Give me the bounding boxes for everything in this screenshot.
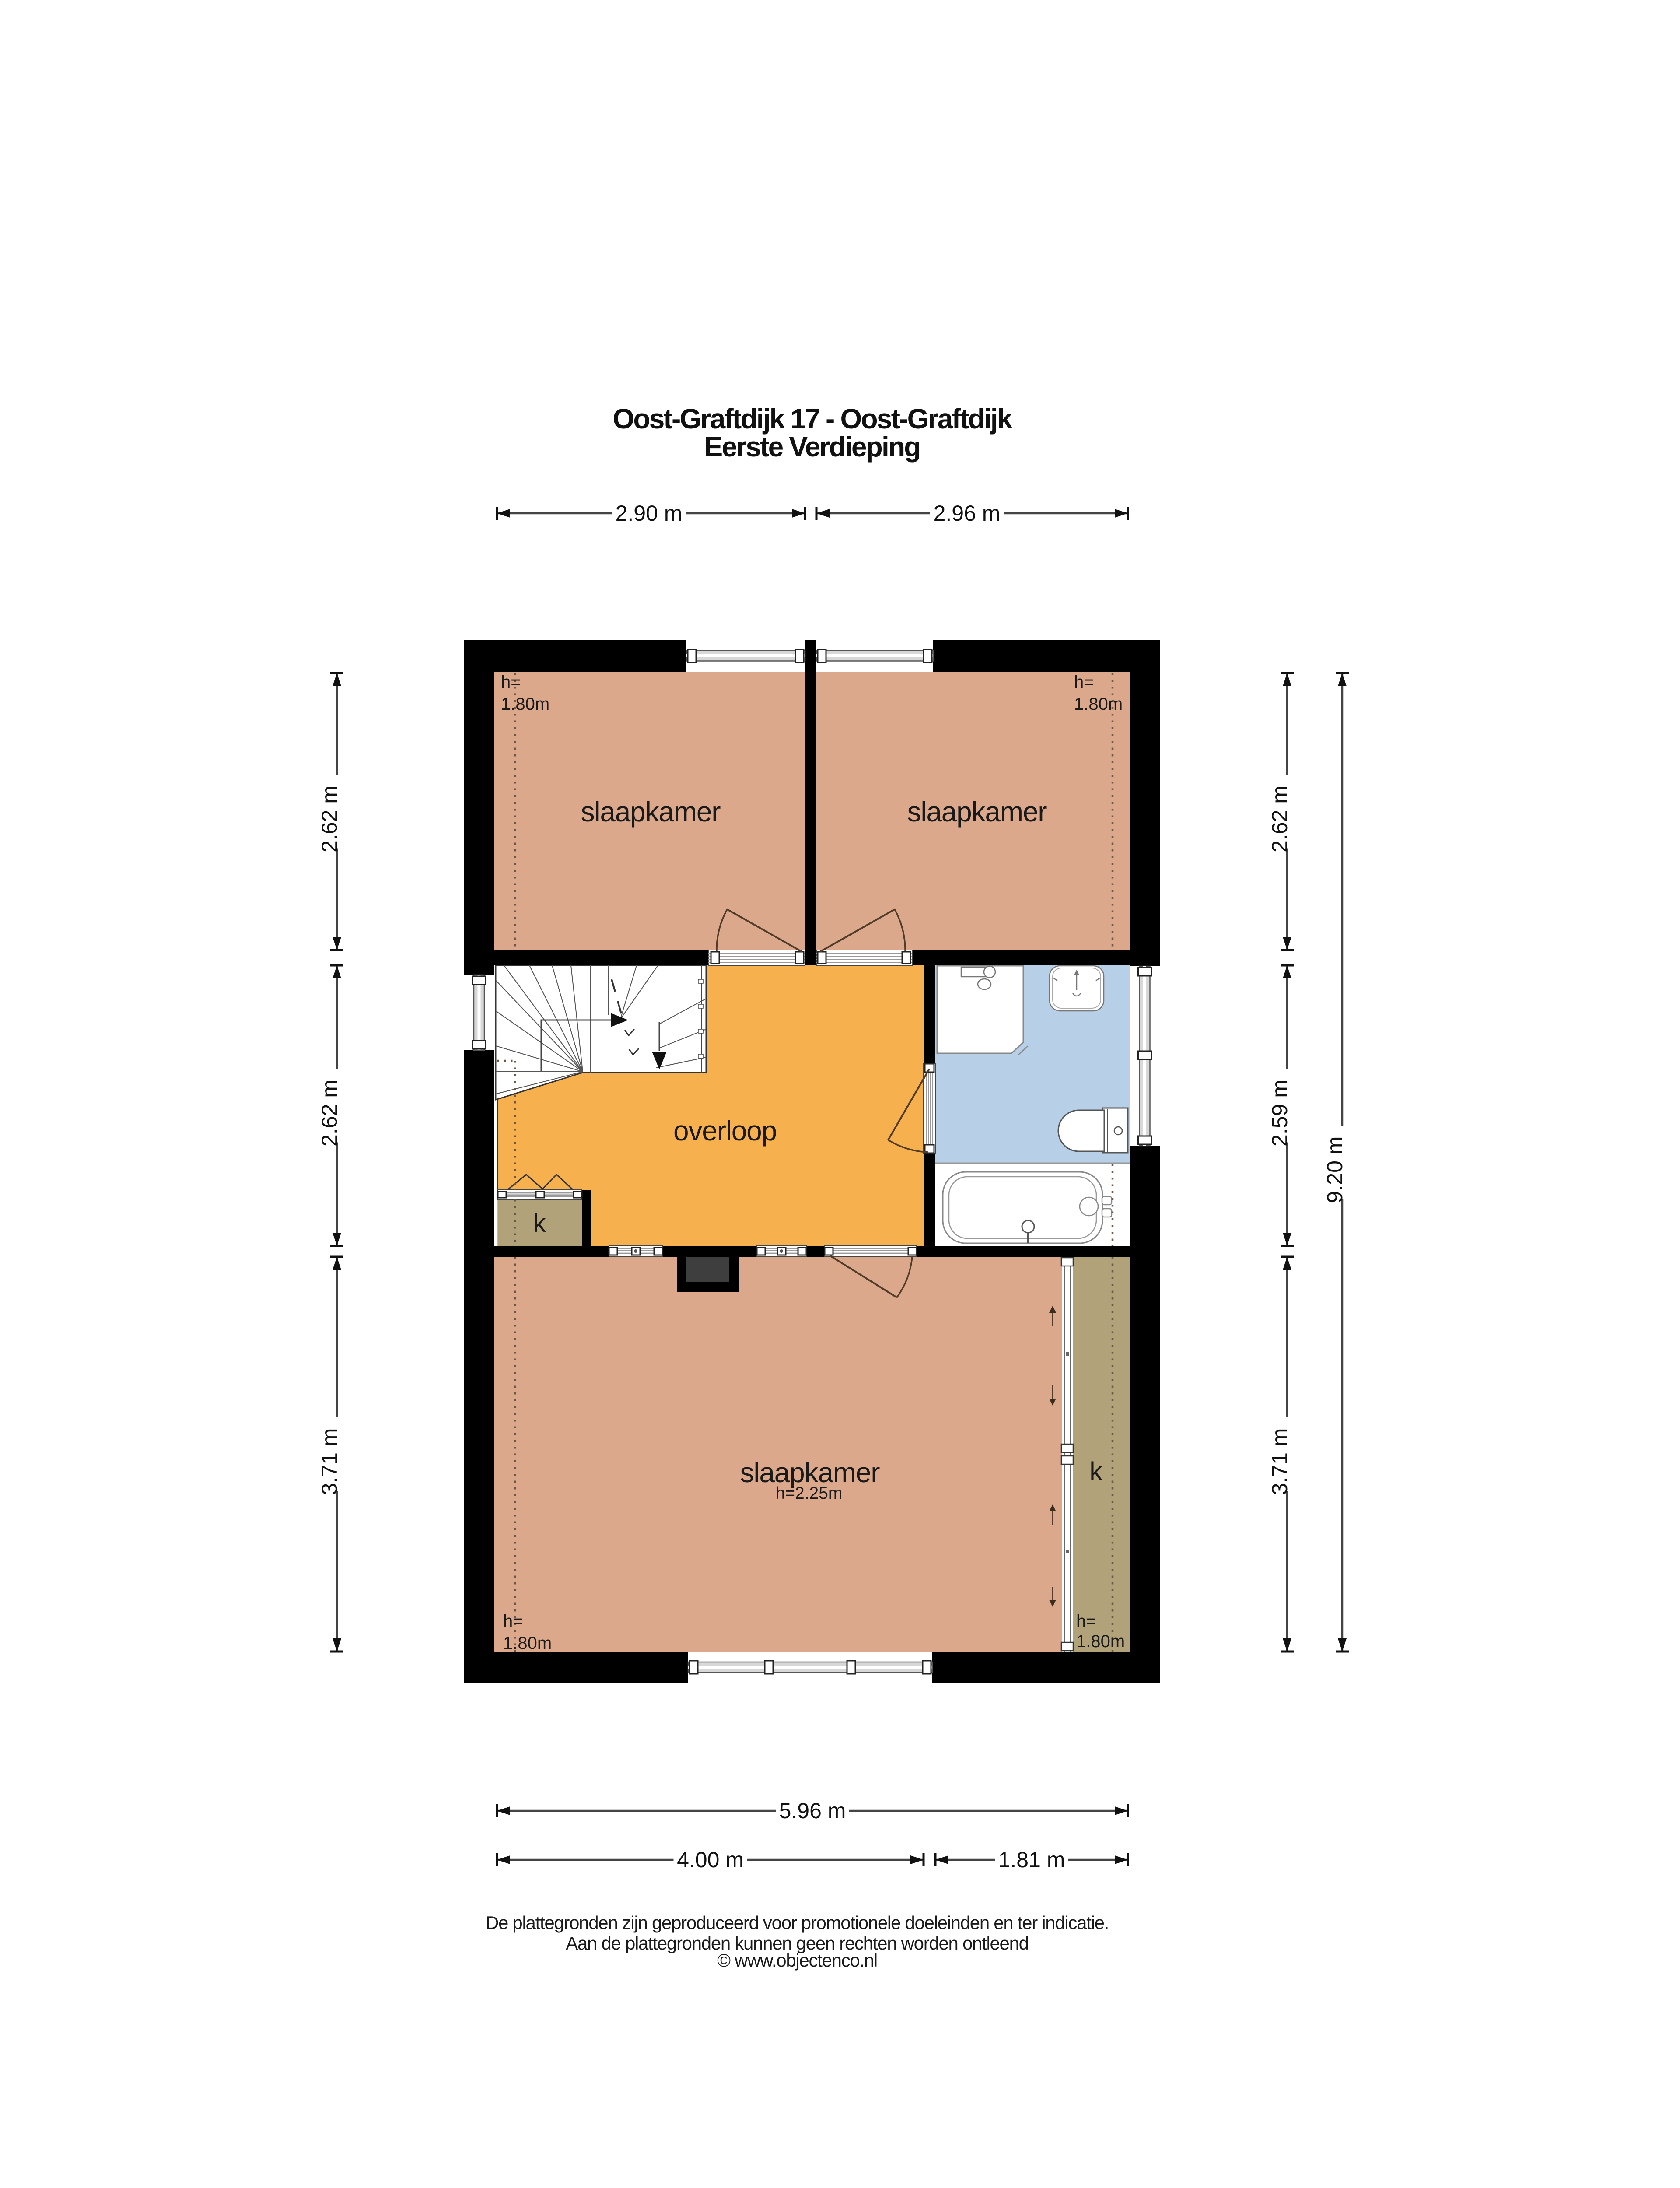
svg-text:1.80m: 1.80m [1074, 694, 1123, 714]
svg-text:Eerste Verdieping: Eerste Verdieping [704, 431, 920, 463]
svg-text:1.80m: 1.80m [501, 694, 549, 714]
svg-text:h=: h= [501, 673, 521, 692]
svg-text:3.71 m: 3.71 m [317, 1428, 342, 1495]
svg-text:9.20 m: 9.20 m [1323, 1136, 1347, 1203]
svg-text:1.81 m: 1.81 m [998, 1848, 1065, 1872]
svg-text:h=: h= [1076, 1612, 1096, 1631]
svg-text:2.59 m: 2.59 m [1267, 1080, 1292, 1147]
svg-text:1.80m: 1.80m [503, 1634, 552, 1653]
svg-text:2.62 m: 2.62 m [317, 1080, 342, 1147]
svg-text:© www.objectenco.nl: © www.objectenco.nl [717, 1950, 877, 1971]
svg-text:slaapkamer: slaapkamer [581, 796, 721, 828]
svg-text:k: k [1090, 1457, 1103, 1486]
svg-text:Oost-Graftdijk 17 - Oost-Graft: Oost-Graftdijk 17 - Oost-Graftdijk [612, 403, 1012, 435]
svg-text:4.00 m: 4.00 m [677, 1848, 744, 1872]
svg-text:2.62 m: 2.62 m [1267, 785, 1292, 852]
svg-text:slaapkamer: slaapkamer [907, 796, 1047, 828]
svg-text:3.71 m: 3.71 m [1267, 1428, 1292, 1495]
svg-text:De plattegronden zijn geproduc: De plattegronden zijn geproduceerd voor … [486, 1912, 1109, 1933]
svg-text:overloop: overloop [673, 1115, 777, 1147]
svg-text:h=2.25m: h=2.25m [776, 1484, 843, 1503]
svg-text:h=: h= [1074, 673, 1094, 692]
svg-text:5.96 m: 5.96 m [779, 1799, 846, 1823]
svg-text:2.62 m: 2.62 m [317, 785, 342, 852]
svg-text:1.80m: 1.80m [1076, 1632, 1125, 1651]
svg-text:k: k [533, 1209, 546, 1238]
svg-text:h=: h= [503, 1612, 523, 1631]
svg-text:2.90 m: 2.90 m [616, 501, 682, 526]
svg-text:2.96 m: 2.96 m [934, 501, 1001, 526]
